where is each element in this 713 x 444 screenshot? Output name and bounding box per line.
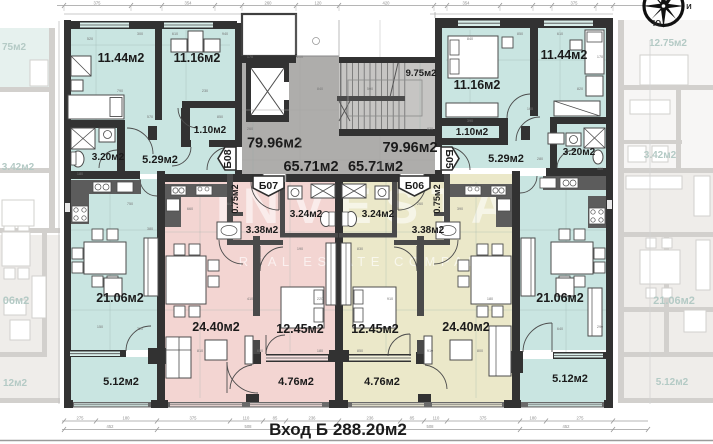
svg-text:660: 660 (187, 207, 193, 211)
svg-text:260: 260 (265, 1, 273, 6)
svg-text:480: 480 (597, 167, 603, 171)
svg-text:85: 85 (410, 416, 415, 421)
svg-text:275: 275 (577, 416, 585, 421)
svg-text:260: 260 (247, 127, 253, 131)
svg-text:3.38м2: 3.38м2 (246, 225, 279, 236)
svg-text:170: 170 (247, 55, 253, 59)
svg-text:79.96м2: 79.96м2 (247, 136, 302, 152)
svg-text:Б07: Б07 (259, 180, 278, 192)
svg-text:110: 110 (243, 416, 250, 421)
svg-text:12.45м2: 12.45м2 (276, 322, 324, 336)
svg-text:190: 190 (297, 247, 303, 251)
svg-text:380: 380 (147, 227, 153, 231)
svg-text:21.06м2: 21.06м2 (96, 291, 144, 305)
svg-text:810: 810 (197, 349, 203, 353)
svg-text:9.75м2: 9.75м2 (406, 68, 437, 79)
svg-text:11.16м2: 11.16м2 (174, 51, 221, 65)
svg-text:150: 150 (97, 325, 103, 329)
svg-text:3.42м2: 3.42м2 (2, 162, 35, 173)
svg-text:640: 640 (227, 202, 233, 206)
svg-text:180: 180 (530, 416, 538, 421)
svg-text:220: 220 (317, 297, 323, 301)
svg-text:452: 452 (563, 424, 571, 429)
svg-text:980: 980 (287, 162, 293, 166)
svg-text:3.20м2: 3.20м2 (563, 147, 596, 158)
svg-text:12.75м2: 12.75м2 (649, 38, 687, 49)
svg-text:24.40м2: 24.40м2 (192, 320, 240, 334)
svg-text:Вход Б 288.20м2: Вход Б 288.20м2 (269, 420, 407, 439)
svg-text:520: 520 (87, 37, 93, 41)
svg-text:420: 420 (383, 1, 391, 6)
svg-text:220: 220 (137, 327, 143, 331)
svg-text:0.75м2: 0.75м2 (432, 184, 442, 213)
svg-text:840: 840 (317, 87, 323, 91)
svg-text:Б05: Б05 (443, 149, 455, 168)
svg-text:640: 640 (557, 327, 563, 331)
svg-text:5.29м2: 5.29м2 (488, 153, 524, 165)
svg-text:850: 850 (217, 115, 223, 119)
svg-text:65.71м2: 65.71м2 (348, 159, 403, 175)
svg-text:5.29м2: 5.29м2 (142, 154, 178, 166)
svg-text:390: 390 (457, 207, 463, 211)
svg-text:0.75м2: 0.75м2 (230, 184, 240, 213)
svg-text:940: 940 (222, 32, 228, 36)
svg-text:910: 910 (387, 297, 393, 301)
svg-text:275: 275 (77, 416, 85, 421)
svg-text:280: 280 (537, 157, 543, 161)
svg-text:340: 340 (387, 162, 393, 166)
svg-text:610: 610 (557, 32, 563, 36)
svg-text:840: 840 (467, 37, 473, 41)
svg-text:375: 375 (94, 1, 102, 6)
svg-text:06м2: 06м2 (3, 295, 30, 307)
svg-text:354: 354 (463, 1, 471, 6)
svg-text:79.96м2: 79.96м2 (382, 140, 437, 156)
svg-text:610: 610 (172, 32, 178, 36)
svg-text:11.44м2: 11.44м2 (541, 48, 588, 62)
svg-text:180: 180 (487, 297, 493, 301)
svg-text:11.44м2: 11.44м2 (98, 51, 145, 65)
svg-text:21.06м2: 21.06м2 (653, 295, 695, 307)
svg-text:180: 180 (77, 172, 83, 176)
svg-text:910: 910 (427, 349, 433, 353)
svg-text:375: 375 (480, 416, 488, 421)
svg-text:75м2: 75м2 (2, 42, 27, 53)
svg-text:650: 650 (257, 349, 263, 353)
svg-text:Б06: Б06 (405, 180, 424, 192)
svg-text:3.20м2: 3.20м2 (92, 152, 125, 163)
svg-text:500: 500 (367, 87, 373, 91)
svg-text:850: 850 (357, 349, 363, 353)
svg-text:160: 160 (527, 107, 533, 111)
svg-text:3.38м2: 3.38м2 (412, 225, 445, 236)
svg-text:180: 180 (123, 416, 131, 421)
svg-text:800: 800 (477, 349, 483, 353)
svg-text:354: 354 (185, 1, 193, 6)
svg-text:410: 410 (247, 297, 253, 301)
svg-text:1.10м2: 1.10м2 (456, 127, 489, 138)
svg-text:790: 790 (117, 89, 123, 93)
svg-text:1.10м2: 1.10м2 (194, 125, 227, 136)
svg-text:375: 375 (571, 1, 579, 6)
svg-text:3.24м2: 3.24м2 (362, 209, 395, 220)
svg-text:24.40м2: 24.40м2 (442, 320, 490, 334)
svg-text:230: 230 (202, 89, 208, 93)
svg-text:820: 820 (577, 87, 583, 91)
svg-text:И: И (686, 2, 691, 11)
svg-text:120: 120 (315, 1, 323, 6)
svg-text:3.42м2: 3.42м2 (644, 150, 677, 161)
svg-text:290: 290 (597, 325, 603, 329)
svg-text:200: 200 (297, 55, 303, 59)
svg-text:110: 110 (433, 416, 440, 421)
svg-text:Б08: Б08 (222, 149, 234, 168)
svg-text:Ю: Ю (653, 19, 661, 28)
svg-text:170: 170 (597, 55, 603, 59)
svg-text:21.06м2: 21.06м2 (536, 291, 584, 305)
svg-text:452: 452 (107, 424, 115, 429)
svg-text:12м2: 12м2 (3, 378, 28, 389)
svg-text:5.12м2: 5.12м2 (656, 377, 689, 388)
svg-text:4.76м2: 4.76м2 (278, 376, 314, 388)
svg-text:260: 260 (417, 202, 423, 206)
svg-text:570: 570 (147, 115, 153, 119)
svg-text:830: 830 (357, 247, 363, 251)
svg-text:4.76м2: 4.76м2 (364, 376, 400, 388)
svg-text:390: 390 (467, 119, 473, 123)
svg-text:12.45м2: 12.45м2 (351, 322, 399, 336)
svg-text:5.12м2: 5.12м2 (103, 376, 139, 388)
svg-text:3.24м2: 3.24м2 (290, 209, 323, 220)
svg-text:11.16м2: 11.16м2 (454, 78, 501, 92)
svg-text:300: 300 (137, 32, 143, 36)
svg-text:5.12м2: 5.12м2 (552, 373, 588, 385)
svg-text:850: 850 (517, 32, 523, 36)
svg-text:375: 375 (190, 416, 198, 421)
svg-text:820: 820 (427, 127, 433, 131)
svg-text:508: 508 (427, 424, 435, 429)
svg-text:508: 508 (245, 424, 253, 429)
svg-text:750: 750 (127, 202, 133, 206)
svg-text:180: 180 (317, 349, 323, 353)
